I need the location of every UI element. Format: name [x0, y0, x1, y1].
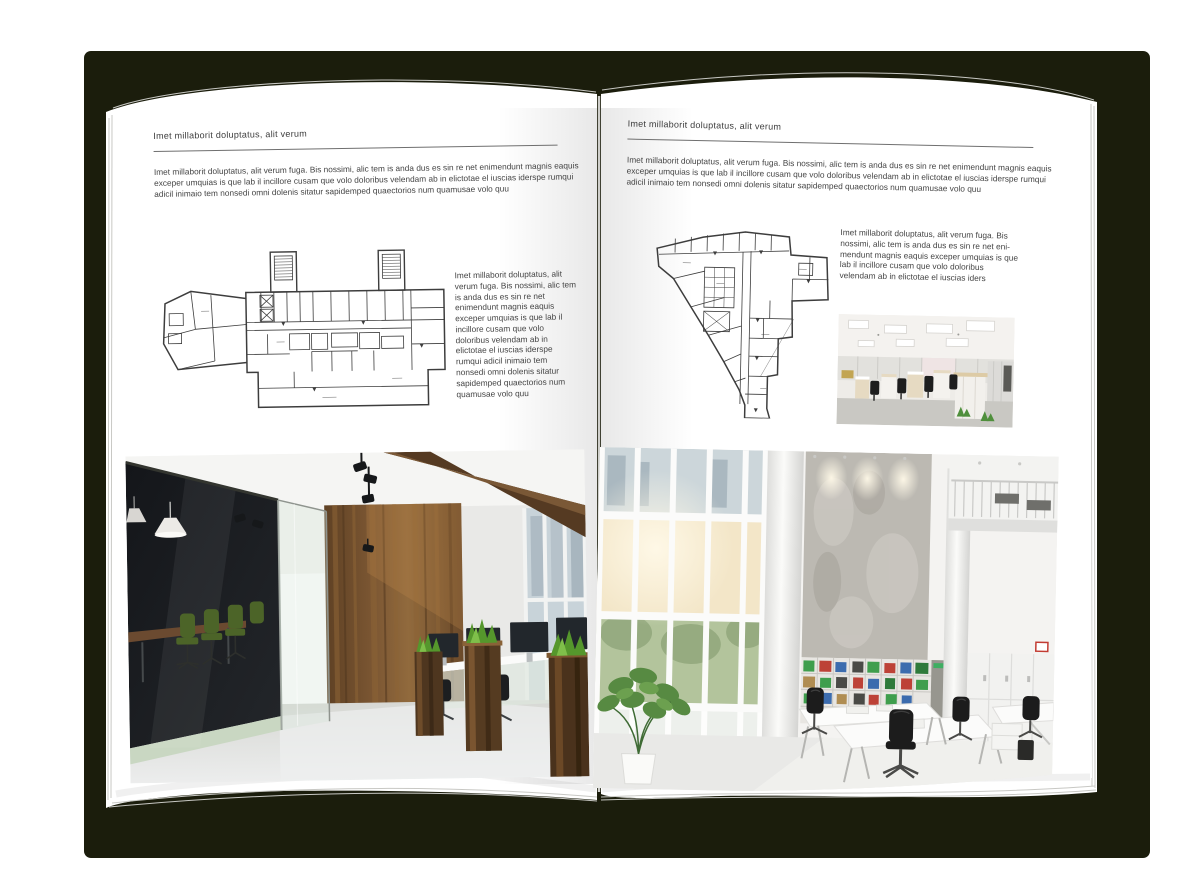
right-side-text: Imet millaborit doluptatus, alit verum f…	[839, 227, 1022, 285]
carpet-floor	[836, 398, 1013, 428]
mezzanine	[948, 454, 1059, 532]
photo-office-small	[836, 314, 1014, 428]
right-header-rule	[627, 139, 1033, 149]
right-intro-paragraph: Imet millaborit doluptatus, alit verum f…	[626, 155, 1055, 197]
ceiling-lights	[838, 314, 1015, 360]
photo-office-interior-right	[593, 447, 1059, 798]
concrete-wall	[802, 451, 932, 660]
magazine-mockup: Imet millaborit doluptatus, alit verum I…	[0, 0, 1200, 891]
waste-bin	[1017, 740, 1033, 760]
floor-plan-right	[644, 222, 836, 420]
right-page-content: Imet millaborit doluptatus, alit verum I…	[0, 0, 1200, 891]
exit-sign	[933, 663, 943, 668]
first-aid-sign	[1036, 642, 1048, 651]
right-page-header: Imet millaborit doluptatus, alit verum	[628, 119, 782, 132]
